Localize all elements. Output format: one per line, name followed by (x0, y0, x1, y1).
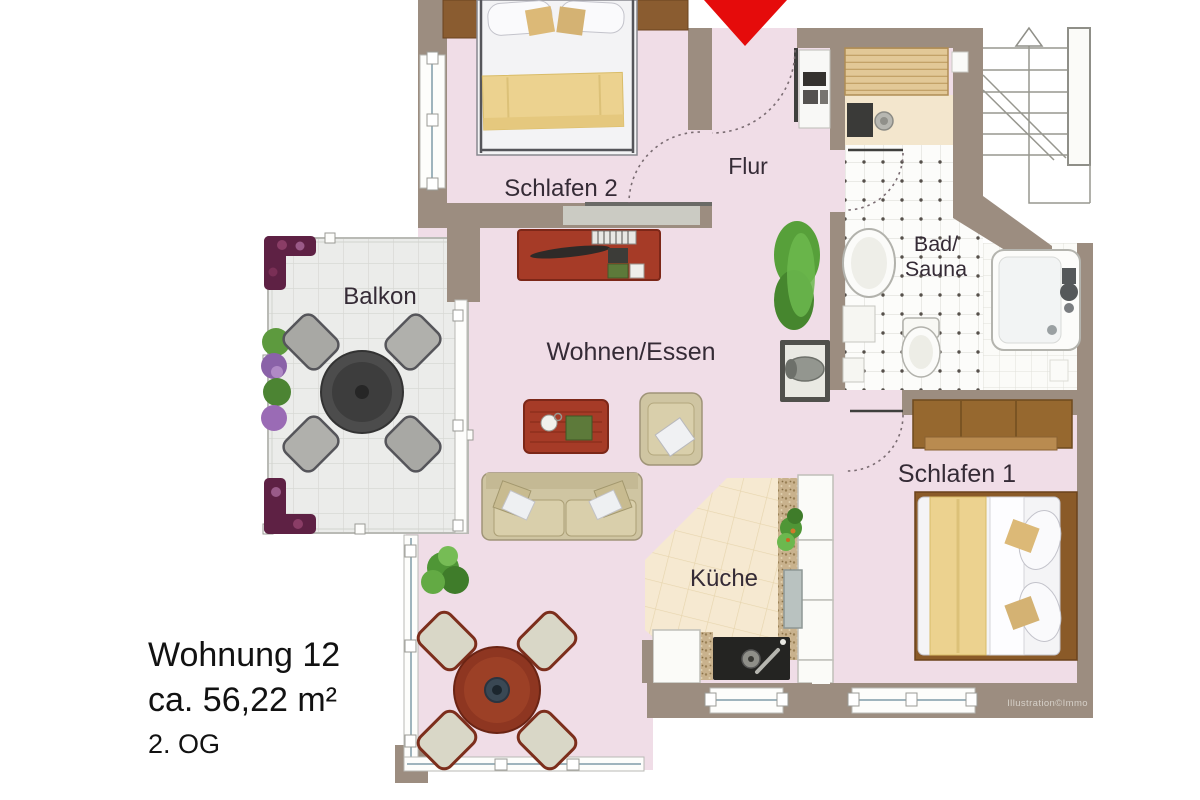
toilet-icon (902, 318, 940, 377)
nightstand (443, 0, 477, 38)
sliding-door-panel (563, 206, 700, 225)
wall-niche (812, 666, 830, 684)
room-label-wohnen-essen: Wohnen/Essen (546, 338, 715, 366)
sliding-door-rail (585, 202, 712, 206)
wall-basin (780, 340, 830, 402)
stove-icon (713, 637, 790, 680)
room-label-schlafen1: Schlafen 1 (898, 460, 1016, 488)
entrance-door-leaf (794, 48, 798, 122)
sauna-stove-icon (847, 103, 873, 137)
plan-caption: Wohnung 12 ca. 56,22 m² 2. OG (148, 633, 340, 765)
window-kitchen (705, 688, 788, 713)
apartment-floor-level: 2. OG (148, 723, 340, 765)
sofa (482, 473, 642, 540)
bath-shelf (843, 306, 875, 342)
watermark: Illustration©Immo (1007, 698, 1088, 709)
room-label-kueche: Küche (690, 565, 758, 592)
sideboard (518, 230, 660, 280)
room-label-flur: Flur (728, 153, 768, 179)
window-balcony-living (453, 300, 467, 533)
hall-shelf (799, 50, 830, 128)
balcony-table (321, 351, 403, 433)
apartment-area: ca. 56,22 m² (148, 678, 340, 723)
window-schlafen2 (420, 52, 445, 190)
sink-icon (843, 229, 895, 297)
armchair (640, 393, 702, 465)
window-schlafen1 (848, 688, 977, 713)
wardrobe-schlafen1 (913, 400, 1072, 450)
room-label-bad-line2: Sauna (905, 257, 967, 281)
bathtub-icon (992, 250, 1080, 350)
room-label-schlafen2: Schlafen 2 (504, 175, 617, 202)
room-label-balkon: Balkon (343, 283, 416, 310)
kitchen-counter-strip (778, 478, 798, 660)
floorplan-page: Schlafen 2 Flur Bad/ Sauna Balkon Wohnen… (0, 0, 1200, 800)
bed-schlafen1 (915, 492, 1077, 660)
kitchen-sink (784, 570, 802, 628)
nightstand (637, 0, 688, 30)
room-label-bad-line1: Bad/ (914, 232, 958, 256)
apartment-title: Wohnung 12 (148, 633, 340, 678)
window-living-west (404, 535, 418, 763)
balcony (261, 233, 473, 534)
coffee-table (524, 400, 608, 453)
